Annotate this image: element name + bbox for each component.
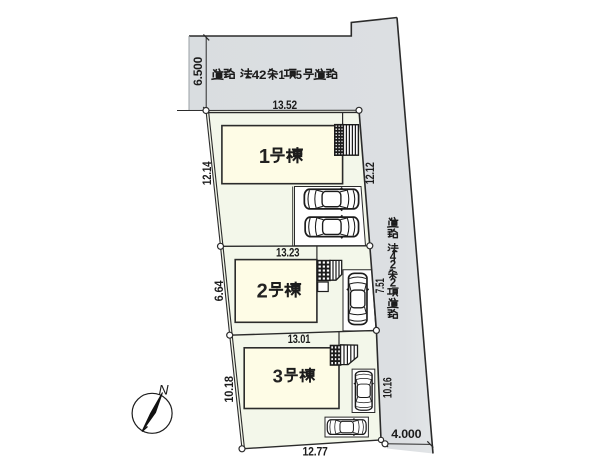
svg-text:7.51: 7.51 (375, 278, 387, 294)
svg-text:13.23: 13.23 (276, 248, 299, 260)
svg-text:13.01: 13.01 (288, 334, 311, 346)
svg-text:13.52: 13.52 (273, 100, 297, 112)
svg-text:1: 1 (259, 146, 270, 168)
svg-text:12.14: 12.14 (202, 161, 214, 185)
svg-text:6.64: 6.64 (214, 280, 226, 301)
svg-text:10.16: 10.16 (382, 377, 394, 398)
svg-text:4.000: 4.000 (391, 429, 421, 441)
svg-text:12.12: 12.12 (365, 162, 377, 184)
svg-text:10.18: 10.18 (224, 375, 236, 402)
svg-text:12.77: 12.77 (303, 447, 328, 459)
svg-text:5: 5 (296, 70, 303, 82)
svg-text:6.500: 6.500 (193, 57, 205, 86)
svg-text:3: 3 (273, 366, 283, 387)
svg-text:N: N (158, 382, 169, 398)
svg-text:42: 42 (252, 70, 267, 82)
svg-text:2: 2 (257, 280, 268, 302)
